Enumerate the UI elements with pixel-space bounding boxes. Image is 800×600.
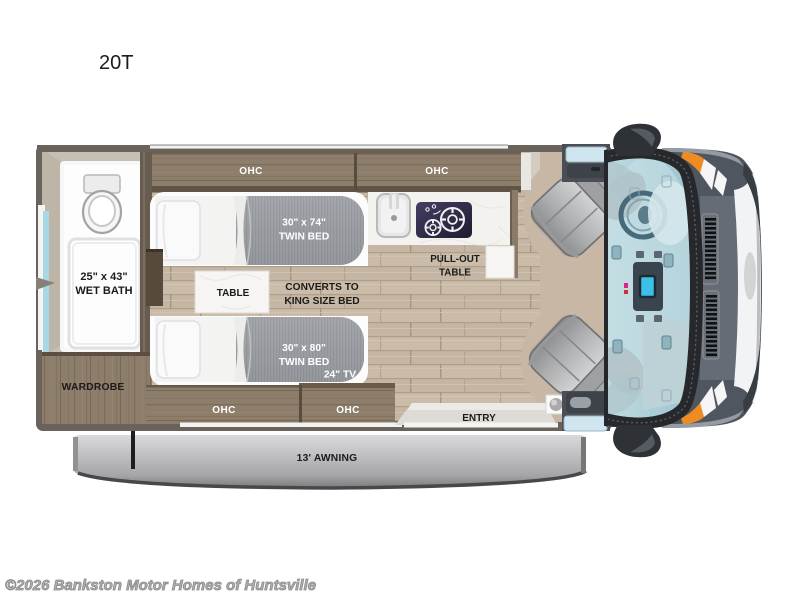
svg-text:WARDROBE: WARDROBE xyxy=(62,382,125,393)
svg-text:ENTRY: ENTRY xyxy=(462,413,496,424)
svg-text:©2026 Bankston Motor Homes of: ©2026 Bankston Motor Homes of Huntsville xyxy=(5,577,316,594)
svg-text:WET BATH: WET BATH xyxy=(75,285,132,297)
svg-text:TABLE: TABLE xyxy=(217,288,250,299)
svg-text:CONVERTS TO: CONVERTS TO xyxy=(285,282,358,293)
svg-text:TWIN BED: TWIN BED xyxy=(279,232,329,243)
svg-text:OHC: OHC xyxy=(239,166,262,177)
svg-text:20T: 20T xyxy=(99,52,133,74)
svg-text:OHC: OHC xyxy=(336,405,359,416)
svg-text:25" x 43": 25" x 43" xyxy=(80,271,127,283)
svg-text:30" x 74": 30" x 74" xyxy=(282,218,326,229)
svg-text:TABLE: TABLE xyxy=(439,268,471,279)
svg-text:OHC: OHC xyxy=(425,166,448,177)
svg-text:30" x 80": 30" x 80" xyxy=(282,343,326,354)
svg-text:KING SIZE BED: KING SIZE BED xyxy=(284,296,359,307)
svg-text:TWIN BED: TWIN BED xyxy=(279,357,329,368)
svg-text:24" TV: 24" TV xyxy=(324,370,356,381)
svg-text:13' AWNING: 13' AWNING xyxy=(297,453,358,464)
svg-text:OHC: OHC xyxy=(212,405,235,416)
svg-text:PULL-OUT: PULL-OUT xyxy=(430,254,480,265)
